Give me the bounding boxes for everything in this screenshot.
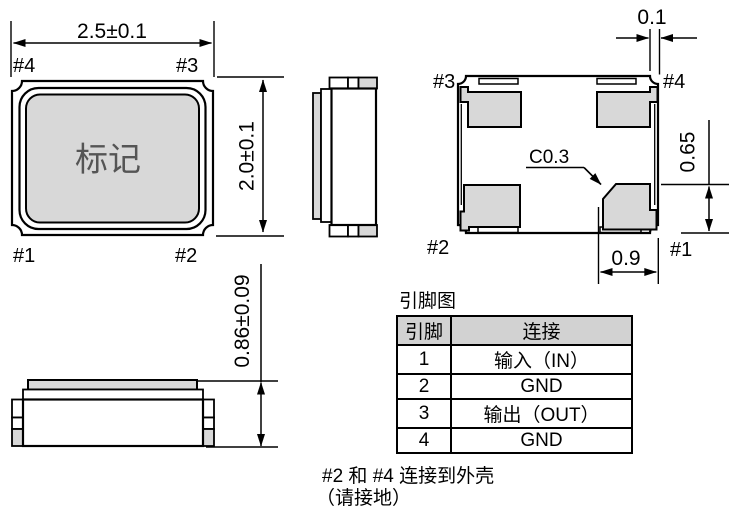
terminal-segment: [12, 400, 23, 418]
bottom-view-gap-dimension: 0.1: [616, 6, 697, 75]
terminal-segment: [12, 429, 23, 446]
table-row: 4 GND: [397, 428, 632, 453]
dim-height-label: 2.0±0.1: [236, 121, 259, 191]
pin-connection-cell: GND: [451, 374, 632, 399]
side-view-lateral: [313, 78, 377, 237]
connection-column-header: 连接: [451, 316, 632, 345]
dim-gap-label: 0.1: [637, 6, 666, 29]
terminal-segment: [330, 78, 349, 89]
table-row: 2 GND: [397, 374, 632, 399]
marking-text: 标记: [75, 141, 141, 178]
lid-edge: [313, 93, 321, 219]
dim-pad-width-label: 0.9: [611, 247, 640, 270]
table-row: 3 输出（OUT）: [397, 399, 632, 428]
dim-pad-height-label: 0.65: [677, 132, 700, 173]
pin-connection-cell: 输入（IN）: [451, 345, 632, 374]
pin-number-cell: 3: [397, 399, 451, 428]
side-view-front: [12, 380, 214, 446]
terminal-segment: [359, 78, 378, 89]
terminal-segment: [330, 225, 349, 237]
pad-1: [603, 184, 657, 230]
terminal-segment: [359, 225, 378, 237]
table-header-row: 引脚 连接: [397, 316, 632, 345]
chamfer-label: C0.3: [529, 147, 569, 168]
note-line: #2 和 #4 连接到外壳: [316, 466, 494, 488]
pin-number-cell: 4: [397, 428, 451, 453]
pin-label-2: #2: [427, 237, 449, 259]
pad-3: [461, 87, 522, 127]
top-view: 标记 #4 #3 #1 #2: [12, 55, 213, 267]
package-body: [23, 400, 203, 447]
dim-thickness-label: 0.86±0.09: [231, 274, 254, 367]
bottom-view-pad-height-dimension: 0.65: [661, 120, 729, 233]
seal-ring-edge: [23, 390, 203, 400]
pin-label-4: #4: [13, 55, 35, 77]
pin-connection-table: 引脚 连接 1 输入（IN） 2 GND 3 输出（OUT） 4: [396, 315, 633, 454]
top-view-height-dimension: 2.0±0.1: [216, 77, 284, 236]
seal-ring-edge: [321, 89, 332, 222]
pin-label-4: #4: [663, 71, 685, 93]
table-row: 1 输入（IN）: [397, 345, 632, 374]
grounding-note: #2 和 #4 连接到外壳 （请接地）: [316, 466, 494, 509]
pin-table-title: 引脚图: [396, 291, 633, 312]
pin-number-cell: 2: [397, 374, 451, 399]
terminal-segment: [203, 418, 214, 430]
pad-4: [597, 87, 658, 127]
pad-2: [461, 185, 521, 231]
castellation-bar: [479, 79, 518, 85]
pin-label-3: #3: [176, 55, 198, 77]
datasheet-drawing-page: 标记 #4 #3 #1 #2 2.5±0.1 2.0±0.1: [0, 0, 735, 515]
pin-label-1: #1: [670, 239, 692, 261]
pin-label-1: #1: [13, 245, 35, 267]
pin-label-3: #3: [433, 71, 455, 93]
terminal-segment: [12, 418, 23, 430]
lid-edge: [28, 380, 197, 390]
castellation-bar: [597, 79, 636, 85]
note-line: （请接地）: [316, 488, 494, 510]
dim-width-label: 2.5±0.1: [77, 20, 147, 43]
pin-table: 引脚图 引脚 连接 1 输入（IN） 2 GND 3: [396, 291, 633, 454]
package-body: [332, 89, 377, 226]
terminal-segment: [203, 400, 214, 418]
pin-label-2: #2: [175, 245, 197, 267]
pin-number-cell: 1: [397, 345, 451, 374]
pin-connection-cell: GND: [451, 428, 632, 453]
pin-column-header: 引脚: [397, 316, 451, 345]
terminal-segment: [348, 78, 359, 89]
pin-connection-cell: 输出（OUT）: [451, 399, 632, 428]
terminal-segment: [348, 225, 359, 237]
terminal-segment: [203, 429, 214, 446]
